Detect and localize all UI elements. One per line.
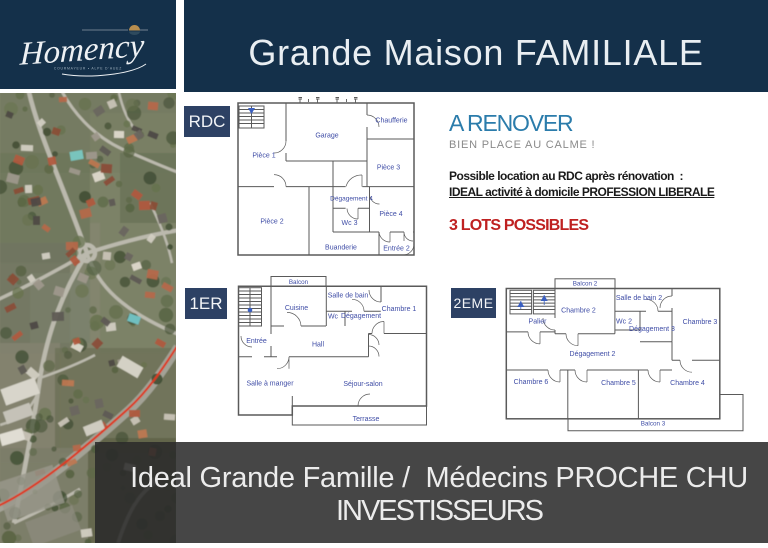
svg-text:Terrasse: Terrasse — [353, 416, 380, 423]
svg-text:Salle de bain: Salle de bain — [328, 293, 369, 300]
svg-text:Dégagement 3: Dégagement 3 — [629, 326, 675, 333]
svg-text:Pièce 1: Pièce 1 — [252, 153, 275, 160]
svg-text:Pièce 3: Pièce 3 — [377, 165, 400, 172]
svg-text:Salle à manger: Salle à manger — [246, 381, 294, 388]
svg-text:Hall: Hall — [312, 342, 325, 349]
svg-text:Balcon: Balcon — [289, 279, 309, 286]
svg-text:Pièce 4: Pièce 4 — [379, 211, 402, 218]
svg-text:Balcon 2: Balcon 2 — [573, 281, 598, 288]
svg-text:Chambre 3: Chambre 3 — [683, 319, 718, 326]
svg-text:Cuisine: Cuisine — [285, 305, 308, 312]
svg-text:Wc: Wc — [328, 314, 339, 321]
svg-text:Chambre 6: Chambre 6 — [514, 379, 549, 386]
svg-text:Entrée 2: Entrée 2 — [383, 246, 410, 253]
svg-text:Chambre 1: Chambre 1 — [382, 306, 417, 313]
svg-text:Pièce 2: Pièce 2 — [260, 219, 283, 226]
svg-text:Dégagement: Dégagement — [341, 313, 381, 320]
svg-text:Chambre 4: Chambre 4 — [670, 380, 705, 387]
svg-text:Chambre 2: Chambre 2 — [561, 308, 596, 315]
svg-text:Dégagement 4: Dégagement 4 — [330, 196, 373, 203]
svg-text:Wc 3: Wc 3 — [342, 220, 358, 227]
svg-text:Garage: Garage — [315, 133, 338, 140]
svg-text:Chaufferie: Chaufferie — [375, 118, 407, 125]
svg-text:Wc 2: Wc 2 — [616, 319, 632, 326]
svg-text:Palier: Palier — [529, 319, 548, 326]
svg-text:Balcon 3: Balcon 3 — [641, 421, 666, 428]
svg-text:Salle de bain 2: Salle de bain 2 — [616, 295, 662, 302]
svg-text:Chambre 5: Chambre 5 — [601, 380, 636, 387]
svg-text:Dégagement 2: Dégagement 2 — [570, 351, 616, 358]
svg-text:Séjour-salon: Séjour-salon — [343, 381, 382, 388]
svg-text:Buanderie: Buanderie — [325, 245, 357, 252]
svg-text:Entrée: Entrée — [246, 338, 267, 345]
